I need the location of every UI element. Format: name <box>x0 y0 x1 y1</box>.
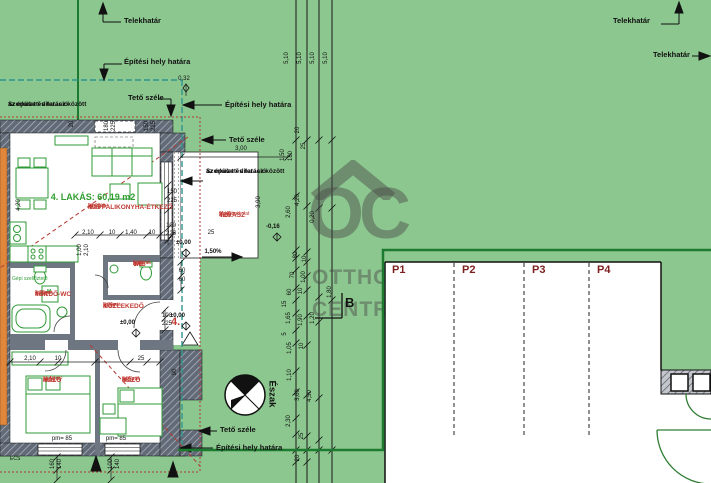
dimension-label: 0,32 <box>178 76 190 82</box>
dimension-label: 100 <box>166 223 176 229</box>
roof-edge-label-1: Tető széle <box>128 93 164 102</box>
dimension-label: 90 <box>172 369 178 376</box>
roof-edge-label-3: Tető széle <box>220 425 256 434</box>
dilatation-note-2-line2: az épület és terasz között <box>206 168 284 176</box>
dimension-label: 1,90 <box>298 314 304 326</box>
telekhatar-label-3: Telekhatár <box>653 50 690 59</box>
building-site-label-2: Építési hely határa <box>225 100 291 109</box>
gutter-label: ECS <box>10 456 20 462</box>
dimension-label: 1,80 <box>327 286 333 298</box>
level-zero-2: ±0,00 <box>170 313 185 319</box>
apartment-title: 4. LAKÁS: 60,19 m2 <box>8 192 178 202</box>
dimension-label: 5 <box>282 332 288 335</box>
dimension-label: 4,20 <box>295 194 301 206</box>
dimension-label: 225 <box>162 321 172 327</box>
dimension-label: 140 <box>115 459 121 469</box>
dimension-label: 1,05 <box>287 342 293 354</box>
dimension-label: 60 <box>287 289 293 296</box>
section-marker-b: B <box>345 295 354 310</box>
dimension-label: 150 <box>167 189 177 195</box>
room-area: 27,28 m² <box>88 204 108 210</box>
level-minus: -0,16 <box>266 224 280 230</box>
building-site-label-1: Építési hely határa <box>124 57 190 66</box>
room-area: 9,57 m² <box>122 377 139 383</box>
dimension-label: 225 <box>151 121 157 131</box>
dimension-label: 1,40 <box>125 230 137 236</box>
dimension-label: 10 <box>298 288 304 295</box>
dimension-label: 0,20 <box>310 211 316 223</box>
dimension-label: 3,60 <box>295 389 301 401</box>
dimension-label: 80 <box>293 252 299 259</box>
dimension-label: 10 <box>55 356 62 362</box>
level-zero-1: ±0,00 <box>176 240 191 246</box>
dimension-label: 100 <box>108 459 114 469</box>
vent-note: Gépi szellőztető <box>12 276 48 282</box>
parking-stall-label: P3 <box>532 264 545 276</box>
dimension-label: 2,10 <box>24 356 36 362</box>
dimension-label: 4,50 <box>307 390 313 402</box>
sill-height-1: pm= 85 <box>52 436 72 442</box>
dimension-label: 20 <box>295 455 301 462</box>
room-area: 7,00 m² <box>103 303 120 309</box>
dimension-label: 20 <box>69 121 75 128</box>
parking-stall-label: P4 <box>597 264 610 276</box>
floor-plan-canvas: OC OTTHON CENTRUM Telekhatár Telekhatár … <box>0 0 711 483</box>
dimension-label: 10 <box>149 230 156 236</box>
sill-height-2: pm= 85 <box>106 436 126 442</box>
dilatation-note-1-line2: az épület és terasz között <box>8 101 86 109</box>
dimension-label: 1,00 <box>77 244 83 256</box>
dimension-label: 5,10 <box>297 52 303 64</box>
dimension-label: 3,00 <box>235 146 247 152</box>
dimension-label: 150 <box>144 121 150 131</box>
dimension-label: 3,90 <box>256 196 262 208</box>
dimension-label: 10 <box>299 343 305 350</box>
dimension-label: 100 <box>162 313 172 319</box>
dimension-label: 180 <box>104 121 110 131</box>
labels-overlay: Telekhatár Telekhatár Telekhatár Építési… <box>0 0 711 483</box>
building-site-label-3: Építési hely határa <box>216 443 282 452</box>
dimension-label: 225 <box>166 231 176 237</box>
dimension-label: 160 <box>50 459 56 469</box>
dimension-label: 20 <box>295 127 301 134</box>
dimension-label: 2,30 <box>286 415 292 427</box>
dimension-label: 140 <box>57 459 63 469</box>
room-area: 1,50 m² <box>133 261 150 267</box>
roof-edge-label-2: Tető széle <box>229 135 265 144</box>
dimension-label: 180 <box>288 151 294 161</box>
dimension-label: 5,10 <box>310 52 316 64</box>
north-label: Észak <box>267 381 278 408</box>
dimension-label: 4,20 <box>16 199 22 211</box>
parking-stall-label: P1 <box>392 264 405 276</box>
dimension-label: 2,10 <box>84 244 90 256</box>
dimension-label: 5,10 <box>323 52 329 64</box>
dimension-label: 60 <box>179 268 186 274</box>
dimension-label: 25 <box>301 143 307 150</box>
dimension-label: 15 <box>282 301 288 308</box>
dimension-label: 2,10 <box>82 230 94 236</box>
level-zero-3: ±0,00 <box>120 320 135 326</box>
dimension-label: 10 <box>109 230 116 236</box>
dimension-label: 1,65 <box>286 312 292 324</box>
dimension-label: 25 <box>138 356 145 362</box>
dimension-label: 60 <box>179 277 186 283</box>
dimension-label: 225 <box>111 121 117 131</box>
terrace-slope: 1,50% <box>204 249 221 255</box>
telekhatar-label-1: Telekhatár <box>124 16 161 25</box>
dimension-label: 2,60 <box>286 206 292 218</box>
dimension-label: 1,50 <box>280 149 286 161</box>
telekhatar-label-2: Telekhatár <box>613 16 650 25</box>
parking-stall-label: P2 <box>462 264 475 276</box>
dimension-label: 70 <box>290 272 296 279</box>
dimension-label: 25 <box>208 230 215 236</box>
dimension-label: 25 <box>299 433 305 440</box>
dimension-label: 1,00 <box>301 271 307 283</box>
dimension-label: 10 <box>302 256 308 263</box>
room-area: 11,40 m² <box>219 212 238 218</box>
dimension-label: 1,10 <box>287 369 293 381</box>
room-area: 4,30 m² <box>35 291 52 297</box>
dimension-label: 5,10 <box>284 52 290 64</box>
dimension-label: 1,20 <box>310 312 316 324</box>
room-area: 11,52 m² <box>43 377 62 383</box>
